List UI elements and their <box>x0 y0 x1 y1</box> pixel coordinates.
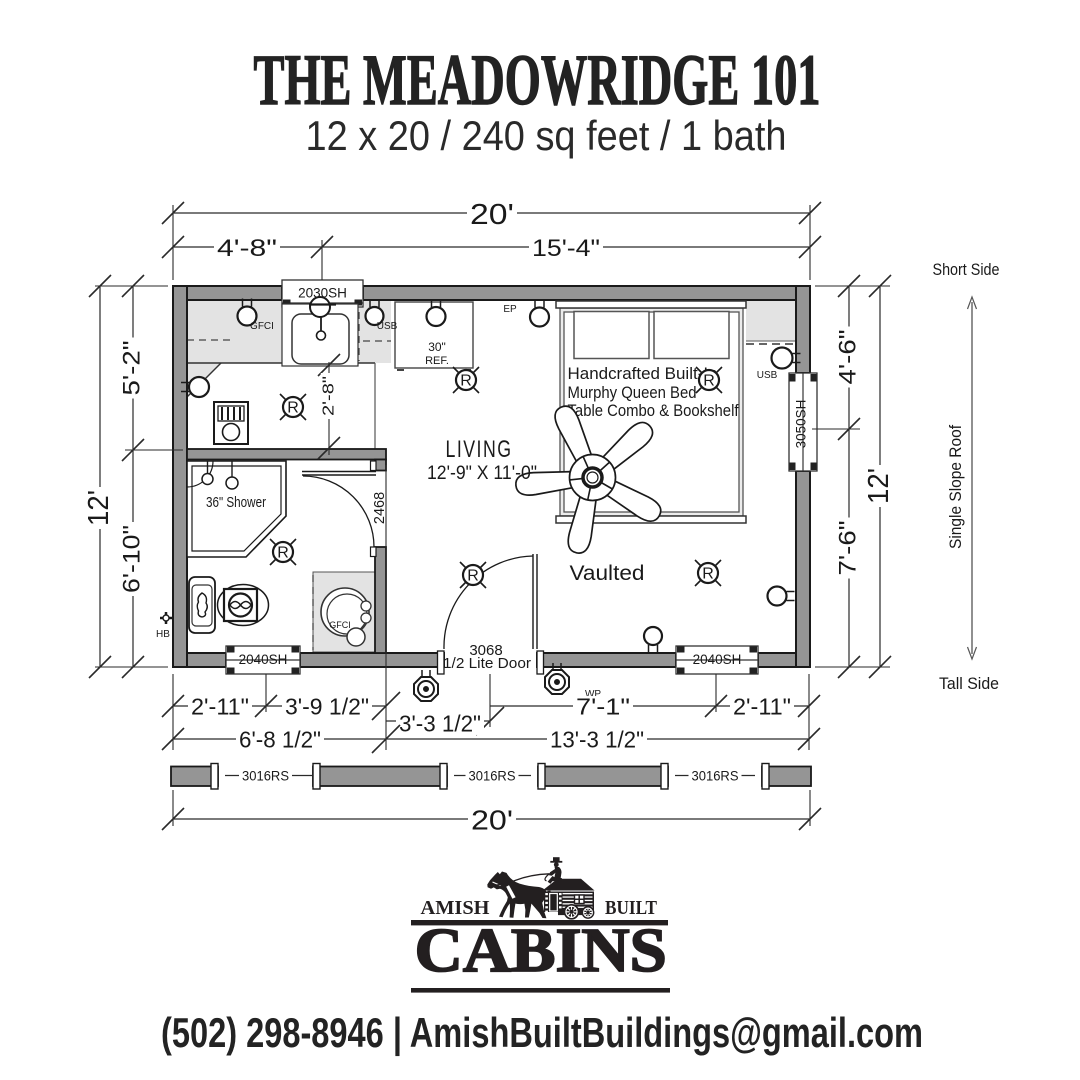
svg-text:REF.: REF. <box>425 355 449 367</box>
svg-text:1/2 Lite Door: 1/2 Lite Door <box>443 655 531 672</box>
svg-text:Single Slope Roof: Single Slope Roof <box>946 425 965 549</box>
svg-text:3016RS: 3016RS <box>242 769 289 784</box>
svg-text:R: R <box>277 545 289 562</box>
svg-text:3050SH: 3050SH <box>794 400 809 449</box>
svg-text:AMISH: AMISH <box>421 897 490 919</box>
svg-text:36" Shower: 36" Shower <box>206 494 266 511</box>
svg-text:12 x 20 / 240 sq feet / 1 bath: 12 x 20 / 240 sq feet / 1 bath <box>306 112 787 159</box>
svg-text:7'-1": 7'-1" <box>576 694 630 720</box>
svg-text:3016RS: 3016RS <box>469 769 516 784</box>
svg-text:13'-3 1/2": 13'-3 1/2" <box>550 727 644 753</box>
svg-text:GFCI: GFCI <box>329 620 351 630</box>
svg-text:2'-11": 2'-11" <box>733 694 791 720</box>
svg-text:R: R <box>702 566 714 583</box>
svg-text:Murphy Queen Bed: Murphy Queen Bed <box>568 383 697 402</box>
svg-text:Vaulted: Vaulted <box>570 562 645 585</box>
svg-text:Short Side: Short Side <box>933 260 1000 279</box>
svg-text:6'-10": 6'-10" <box>118 525 145 593</box>
svg-text:15'-4": 15'-4" <box>532 235 600 262</box>
svg-text:5'-2": 5'-2" <box>118 341 145 396</box>
svg-text:12': 12' <box>83 490 115 526</box>
svg-text:2040SH: 2040SH <box>239 652 288 667</box>
svg-text:R: R <box>460 373 472 390</box>
svg-text:R: R <box>703 373 715 390</box>
svg-text:20': 20' <box>470 199 514 231</box>
svg-text:Handcrafted Built-In: Handcrafted Built-In <box>568 364 718 383</box>
svg-text:3'-3 1/2": 3'-3 1/2" <box>399 711 481 737</box>
svg-text:BUILT: BUILT <box>605 897 658 919</box>
svg-text:3'-9 1/2": 3'-9 1/2" <box>285 694 369 720</box>
svg-text:GFCI: GFCI <box>250 321 274 332</box>
svg-text:(502) 298-8946 | AmishBuiltBui: (502) 298-8946 | AmishBuiltBuildings@gma… <box>161 1009 923 1057</box>
svg-text:USB: USB <box>377 321 398 332</box>
svg-text:2'-11": 2'-11" <box>191 694 249 720</box>
svg-text:Table Combo & Bookshelf: Table Combo & Bookshelf <box>568 401 739 420</box>
svg-text:20': 20' <box>471 805 513 836</box>
svg-text:USB: USB <box>757 370 778 381</box>
svg-text:2040SH: 2040SH <box>693 652 742 667</box>
svg-text:12': 12' <box>863 468 895 504</box>
svg-text:R: R <box>287 400 299 417</box>
svg-text:4'-8": 4'-8" <box>217 235 277 262</box>
svg-text:Tall Side: Tall Side <box>939 674 999 693</box>
svg-text:3016RS: 3016RS <box>692 769 739 784</box>
svg-text:THE MEADOWRIDGE 101: THE MEADOWRIDGE 101 <box>254 40 821 120</box>
svg-text:12'-9" X 11'-0": 12'-9" X 11'-0" <box>427 463 537 484</box>
svg-text:30": 30" <box>428 340 446 354</box>
svg-text:HB: HB <box>156 629 170 640</box>
svg-text:LIVING: LIVING <box>446 436 513 463</box>
svg-text:6'-8 1/2": 6'-8 1/2" <box>239 727 321 753</box>
svg-text:R: R <box>467 568 479 585</box>
svg-text:7'-6": 7'-6" <box>834 521 861 576</box>
svg-text:4'-6": 4'-6" <box>834 330 861 385</box>
svg-text:CABINS: CABINS <box>415 917 667 985</box>
svg-text:EP: EP <box>503 304 517 315</box>
svg-text:2'-8": 2'-8" <box>320 376 337 416</box>
